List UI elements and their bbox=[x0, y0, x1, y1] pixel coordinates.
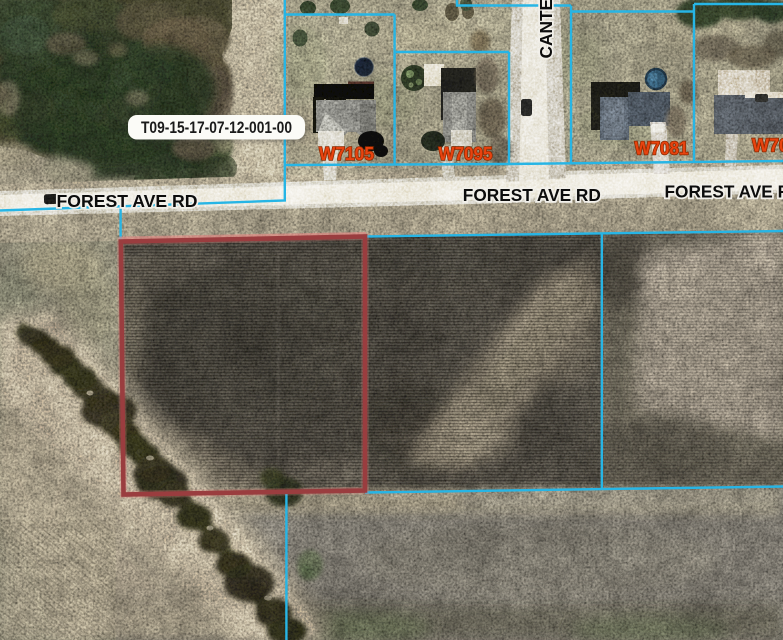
svg-text:W7081: W7081 bbox=[635, 139, 689, 159]
svg-text:W7105: W7105 bbox=[319, 144, 374, 164]
svg-text:W7095: W7095 bbox=[439, 144, 493, 164]
svg-text:FOREST AVE RD: FOREST AVE RD bbox=[665, 182, 783, 202]
svg-text:T09-15-17-07-12-001-00: T09-15-17-07-12-001-00 bbox=[141, 119, 292, 137]
svg-text:FOREST AVE RD: FOREST AVE RD bbox=[57, 191, 198, 211]
svg-text:CANTERBURY RD: CANTERBURY RD bbox=[536, 0, 556, 59]
svg-text:W7069: W7069 bbox=[752, 136, 783, 156]
svg-text:FOREST AVE RD: FOREST AVE RD bbox=[463, 185, 601, 205]
